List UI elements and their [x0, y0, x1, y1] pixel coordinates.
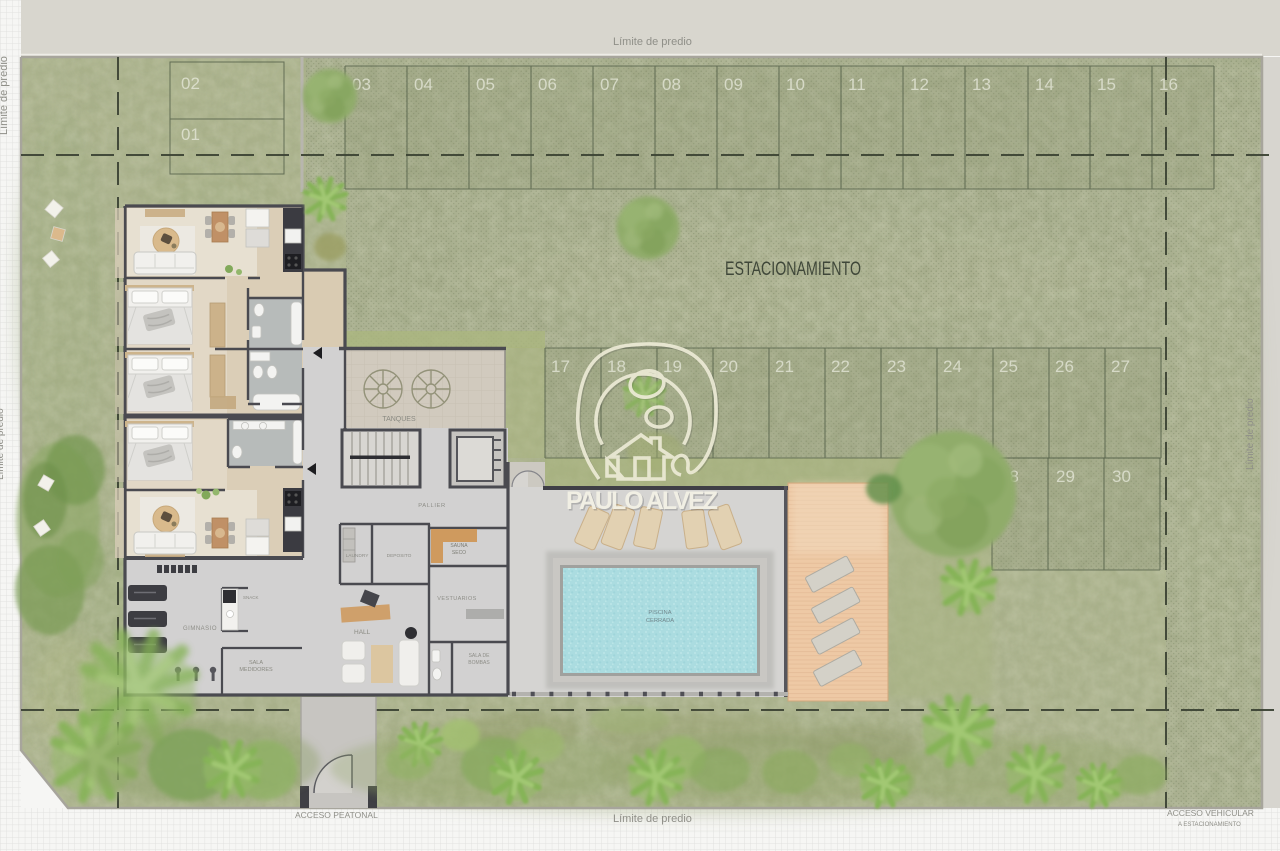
svg-text:16: 16: [1159, 75, 1178, 94]
svg-text:SALA DE: SALA DE: [469, 653, 491, 659]
svg-text:TANQUES: TANQUES: [382, 416, 416, 423]
svg-text:01: 01: [181, 125, 200, 144]
svg-text:05: 05: [476, 75, 495, 94]
svg-text:22: 22: [831, 357, 850, 376]
svg-text:17: 17: [551, 357, 570, 376]
svg-text:12: 12: [910, 75, 929, 94]
svg-text:27: 27: [1111, 357, 1130, 376]
svg-text:VESTUARIOS: VESTUARIOS: [437, 596, 476, 602]
svg-text:09: 09: [724, 75, 743, 94]
svg-text:LAUNDRY: LAUNDRY: [346, 553, 370, 559]
svg-text:20: 20: [719, 357, 738, 376]
svg-text:15: 15: [1097, 75, 1116, 94]
svg-text:MEDIDORES: MEDIDORES: [239, 667, 273, 673]
svg-text:10: 10: [786, 75, 805, 94]
svg-text:ACCESO PEATONAL: ACCESO PEATONAL: [295, 810, 378, 820]
svg-text:21: 21: [775, 357, 794, 376]
svg-text:02: 02: [181, 74, 200, 93]
svg-text:GIMNASIO: GIMNASIO: [183, 626, 217, 632]
svg-text:Límite de predio: Límite de predio: [613, 813, 692, 825]
svg-text:HALL: HALL: [354, 629, 371, 636]
svg-text:Límite de predio: Límite de predio: [613, 36, 692, 48]
svg-text:CERRADA: CERRADA: [646, 618, 674, 624]
svg-text:08: 08: [662, 75, 681, 94]
svg-text:11: 11: [848, 75, 866, 94]
svg-text:30: 30: [1112, 467, 1131, 486]
svg-text:06: 06: [538, 75, 557, 94]
svg-text:DEPOSITO: DEPOSITO: [387, 553, 412, 559]
svg-text:SALA: SALA: [249, 660, 263, 666]
svg-text:SECO: SECO: [452, 550, 466, 556]
svg-text:13: 13: [972, 75, 991, 94]
svg-text:SAUNA: SAUNA: [450, 543, 468, 549]
svg-text:18: 18: [607, 357, 626, 376]
svg-text:ESTACIONAMIENTO: ESTACIONAMIENTO: [725, 258, 861, 280]
svg-text:04: 04: [414, 75, 433, 94]
svg-text:PAULO ALVEZ: PAULO ALVEZ: [566, 487, 718, 515]
svg-text:14: 14: [1035, 75, 1054, 94]
svg-text:BOMBAS: BOMBAS: [468, 660, 490, 666]
svg-text:24: 24: [943, 357, 962, 376]
svg-text:26: 26: [1055, 357, 1074, 376]
svg-text:23: 23: [887, 357, 906, 376]
svg-text:ACCESO VEHICULAR: ACCESO VEHICULAR: [1167, 808, 1254, 818]
svg-text:29: 29: [1056, 467, 1075, 486]
svg-text:Límite de predio: Límite de predio: [0, 408, 6, 480]
svg-text:PALLIER: PALLIER: [418, 503, 446, 509]
svg-text:SNACK: SNACK: [243, 595, 259, 600]
svg-text:A ESTACIONAMIENTO: A ESTACIONAMIENTO: [1178, 822, 1241, 828]
svg-text:Límite de predio: Límite de predio: [1245, 398, 1256, 470]
svg-text:19: 19: [663, 357, 682, 376]
svg-text:Límite de predio: Límite de predio: [0, 56, 10, 135]
svg-text:07: 07: [600, 75, 619, 94]
svg-text:25: 25: [999, 357, 1018, 376]
svg-text:PISCINA: PISCINA: [648, 610, 671, 616]
